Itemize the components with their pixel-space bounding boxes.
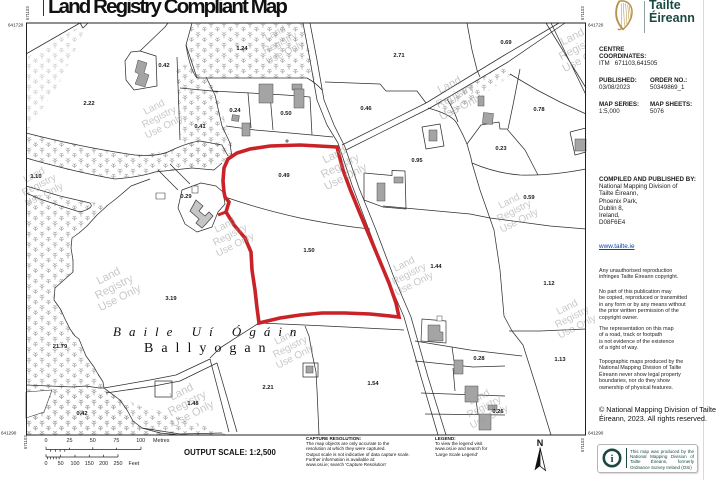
svg-text:1.13: 1.13	[554, 357, 566, 363]
svg-text:i: i	[610, 453, 613, 465]
svg-text:100: 100	[71, 461, 80, 467]
svg-text:1.10: 1.10	[30, 174, 41, 180]
svg-text:0.42: 0.42	[158, 63, 169, 69]
svg-text:150: 150	[85, 461, 94, 467]
svg-text:1.50: 1.50	[303, 248, 314, 254]
svg-text:0.78: 0.78	[533, 107, 545, 113]
svg-text:0.28: 0.28	[473, 356, 485, 362]
svg-text:250: 250	[114, 461, 123, 467]
svg-text:21.79: 21.79	[53, 344, 68, 350]
svg-text:200: 200	[99, 461, 108, 467]
svg-text:0.50: 0.50	[280, 111, 291, 117]
svg-text:671103: 671103	[25, 6, 30, 20]
svg-text:25: 25	[67, 438, 73, 444]
svg-text:2.21: 2.21	[262, 385, 274, 391]
svg-text:0.24: 0.24	[229, 108, 241, 114]
svg-text:50: 50	[90, 438, 96, 444]
svg-text:100: 100	[136, 438, 145, 444]
svg-text:0.26: 0.26	[492, 409, 504, 415]
svg-text:641720: 641720	[8, 23, 24, 28]
svg-text:0: 0	[45, 461, 48, 467]
svg-text:0.95: 0.95	[411, 158, 423, 164]
svg-text:Feet: Feet	[129, 461, 140, 467]
svg-text:75: 75	[113, 438, 119, 444]
svg-text:641290: 641290	[588, 431, 604, 436]
svg-text:0.42: 0.42	[76, 411, 87, 417]
svg-text:0.69: 0.69	[500, 40, 512, 46]
svg-text:2.22: 2.22	[83, 101, 94, 107]
svg-text:1.12: 1.12	[543, 281, 554, 287]
svg-text:2.71: 2.71	[393, 53, 405, 59]
svg-text:671103: 671103	[580, 6, 585, 20]
svg-text:Metres: Metres	[153, 438, 170, 444]
svg-text:0.23: 0.23	[495, 146, 507, 152]
svg-text:0.41: 0.41	[194, 124, 206, 130]
svg-text:0.49: 0.49	[278, 173, 290, 179]
svg-text:0.46: 0.46	[360, 106, 372, 112]
svg-text:1.44: 1.44	[430, 264, 442, 270]
svg-text:0.59: 0.59	[523, 195, 535, 201]
svg-text:N: N	[537, 438, 544, 448]
svg-text:671103: 671103	[23, 435, 28, 449]
svg-text:Baile Uí Ógáin: Baile Uí Ógáin	[113, 324, 304, 339]
svg-text:641290: 641290	[1, 431, 17, 436]
svg-text:3.19: 3.19	[165, 296, 177, 302]
svg-text:1.48: 1.48	[187, 401, 199, 407]
svg-text:671103: 671103	[580, 438, 585, 452]
svg-text:50: 50	[58, 461, 64, 467]
svg-text:0: 0	[45, 438, 48, 444]
svg-text:1.54: 1.54	[367, 381, 379, 387]
svg-text:0.29: 0.29	[180, 194, 192, 200]
svg-text:1.24: 1.24	[236, 46, 248, 52]
svg-text:Ballyogan: Ballyogan	[144, 341, 274, 356]
svg-text:641720: 641720	[588, 23, 604, 28]
svg-text:OUTPUT SCALE: 1:2,500: OUTPUT SCALE: 1:2,500	[184, 448, 277, 457]
